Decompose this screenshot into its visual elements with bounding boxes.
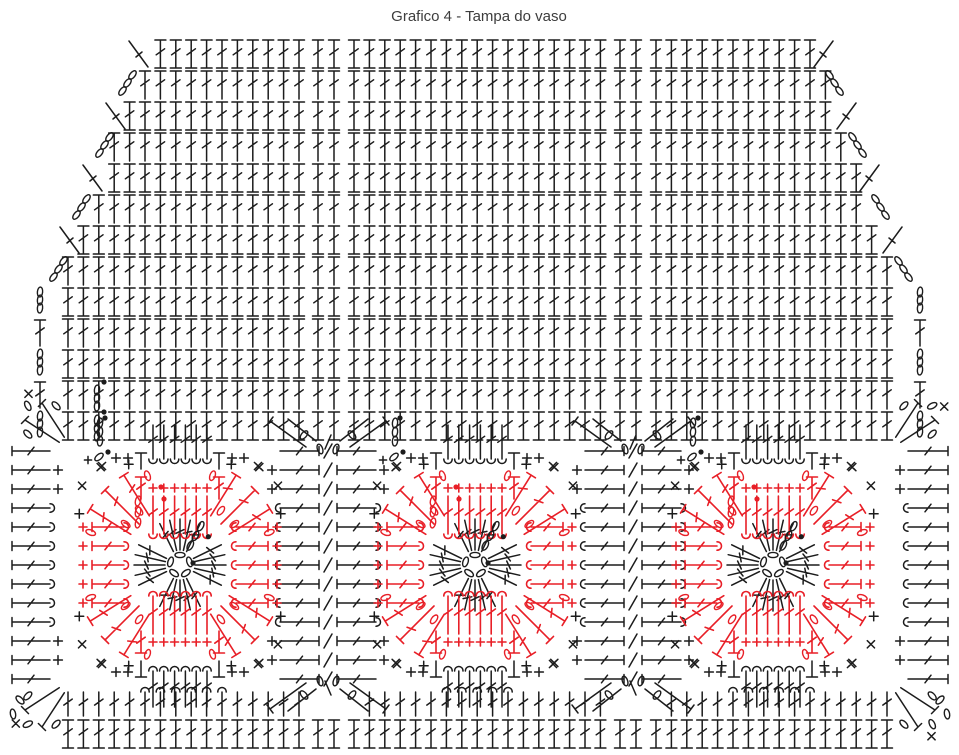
chart-title: Grafico 4 - Tampa do vaso [391,8,567,25]
crochet-chart: Grafico 4 - Tampa do vaso [0,0,959,755]
crochet-chart-page: Grafico 4 - Tampa do vaso [0,0,959,755]
stitch-layer [10,40,951,748]
